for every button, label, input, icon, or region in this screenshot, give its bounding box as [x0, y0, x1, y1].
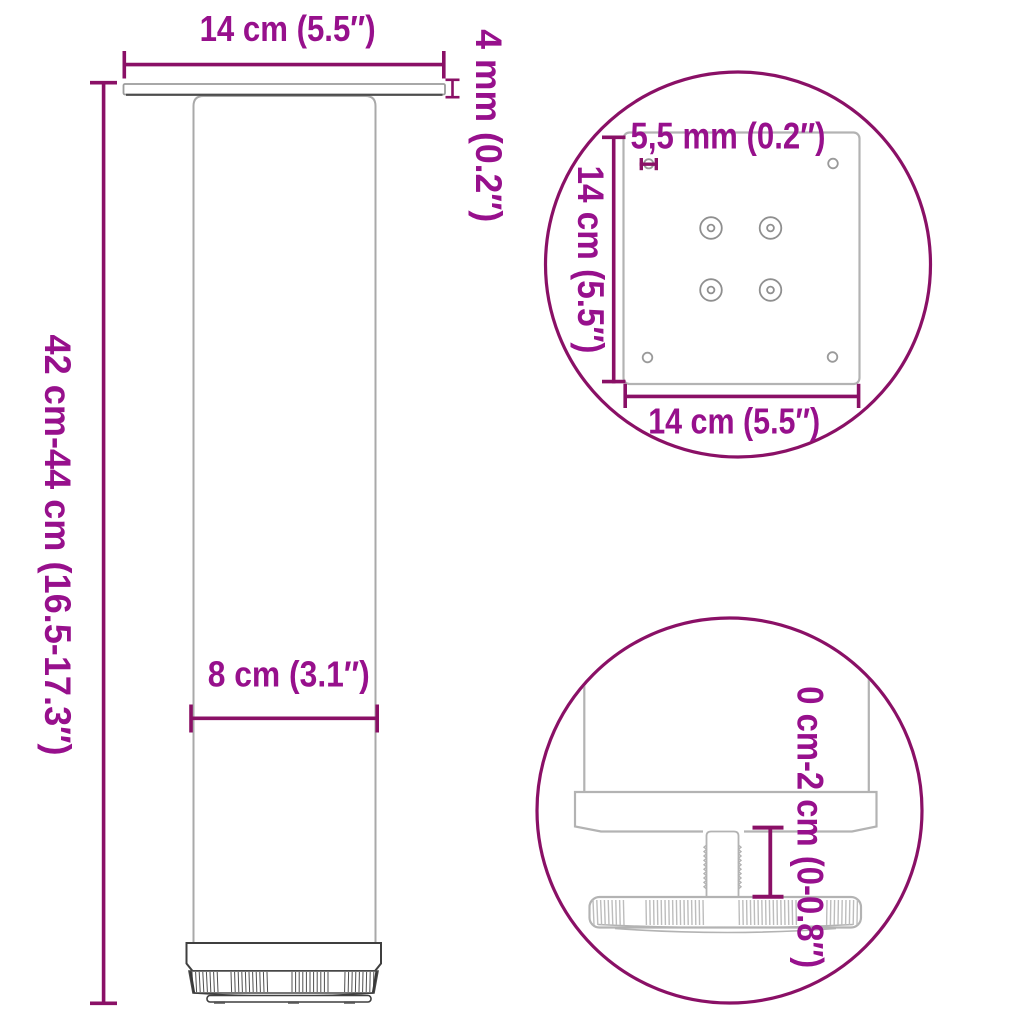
svg-text:4 mm (0.2″): 4 mm (0.2″) [468, 29, 510, 222]
svg-text:14 cm (5.5″): 14 cm (5.5″) [570, 166, 612, 354]
svg-text:0 cm-2 cm (0-0.8″): 0 cm-2 cm (0-0.8″) [790, 686, 832, 968]
svg-text:8 cm (3.1″): 8 cm (3.1″) [208, 654, 370, 695]
svg-text:14 cm (5.5″): 14 cm (5.5″) [648, 401, 820, 442]
svg-text:14 cm (5.5″): 14 cm (5.5″) [200, 8, 376, 49]
svg-text:42 cm-44 cm (16.5-17.3″): 42 cm-44 cm (16.5-17.3″) [37, 335, 79, 756]
svg-text:5,5 mm (0.2″): 5,5 mm (0.2″) [631, 116, 826, 157]
